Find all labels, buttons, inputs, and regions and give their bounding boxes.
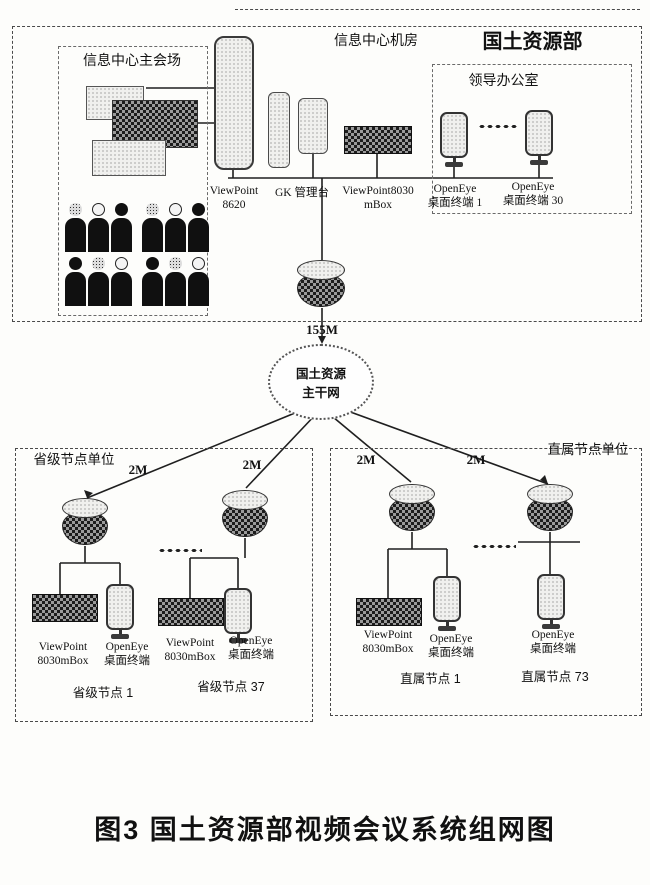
affiliated-node-73-terminal-device <box>535 574 567 629</box>
provincial-node-1-mbox-device <box>32 594 98 622</box>
ministry-title: 国土资源部 <box>470 30 595 55</box>
person-icon <box>142 203 163 255</box>
terminal-30-label: OpenEye 桌面终端 30 <box>498 180 568 209</box>
person-icon <box>111 203 132 255</box>
provincial-node-1-router <box>62 498 108 545</box>
person-icon <box>65 257 86 309</box>
terminal-1-label: OpenEye 桌面终端 1 <box>422 182 488 211</box>
network-diagram-figure: 国土资源部 信息中心主会场 信息中心机房 领导办公室 ViewPoint 862… <box>0 0 650 885</box>
branch-bandwidth-label: 2M <box>122 462 154 478</box>
person-icon <box>65 203 86 255</box>
affiliated-node-73-router <box>527 484 573 531</box>
branch-bandwidth-label: 2M <box>236 457 268 473</box>
audience-group <box>64 202 212 310</box>
core-router-device <box>297 260 345 307</box>
person-icon <box>188 257 209 309</box>
affiliated-node-73-name: 直属节点 73 <box>500 670 610 686</box>
provincial-node-37-mbox-label: ViewPoint 8030mBox <box>150 636 230 665</box>
provincial-node-1-mbox-label: ViewPoint 8030mBox <box>22 640 104 669</box>
provincial-node-37-terminal-label: OpenEye 桌面终端 <box>222 634 280 663</box>
backbone-cloud: 国土资源 主干网 <box>268 344 374 420</box>
affiliated-node-1-terminal-device <box>431 576 463 631</box>
affiliated-nodes-ellipsis <box>472 544 516 549</box>
figure-caption: 图3 国土资源部视频会议系统组网图 <box>0 808 650 847</box>
provincial-nodes-ellipsis <box>158 548 202 553</box>
affiliated-node-73-terminal-label: OpenEye 桌面终端 <box>522 628 584 657</box>
branch-bandwidth-label: 2M <box>350 452 382 468</box>
provincial-node-37-router <box>222 490 268 537</box>
provincial-node-37-name: 省级节点 37 <box>176 680 286 696</box>
person-icon <box>165 203 186 255</box>
management-console-device <box>298 98 328 154</box>
leader-office-label: 领导办公室 <box>446 72 561 90</box>
provincial-node-37-mbox-device <box>158 598 224 626</box>
person-icon <box>88 257 109 309</box>
person-icon <box>165 257 186 309</box>
affiliated-node-1-mbox-label: ViewPoint 8030mBox <box>348 628 428 657</box>
gk-label: GK 管理台 <box>268 186 336 200</box>
venue-equipment-block <box>92 140 166 176</box>
machine-room-label: 信息中心机房 <box>296 32 456 50</box>
affiliated-node-1-mbox-device <box>356 598 422 626</box>
branch-bandwidth-label: 2M <box>460 452 492 468</box>
main-venue-label: 信息中心主会场 <box>62 52 202 70</box>
provincial-node-1-terminal-label: OpenEye 桌面终端 <box>98 640 156 669</box>
person-icon <box>88 203 109 255</box>
affiliated-node-1-router <box>389 484 435 531</box>
provincial-units-label: 省级节点单位 <box>22 452 126 469</box>
affiliated-units-label: 直属节点单位 <box>536 442 640 459</box>
gk-gatekeeper-device <box>268 92 290 168</box>
viewpoint-8620-mcu-device <box>214 36 254 170</box>
mbox-label: ViewPoint8030 mBox <box>334 184 422 213</box>
affiliated-node-1-name: 直属节点 1 <box>378 672 483 688</box>
affiliated-node-1-terminal-label: OpenEye 桌面终端 <box>422 632 480 661</box>
provincial-node-1-terminal-device <box>104 584 136 639</box>
person-icon <box>111 257 132 309</box>
mcu-label: ViewPoint 8620 <box>196 184 272 213</box>
provincial-node-1-name: 省级节点 1 <box>48 686 158 702</box>
uplink-bandwidth-label: 155M <box>300 322 344 338</box>
person-icon <box>142 257 163 309</box>
viewpoint-8030-mbox-device <box>344 126 412 154</box>
machine-room-box-top-edge <box>235 9 640 10</box>
